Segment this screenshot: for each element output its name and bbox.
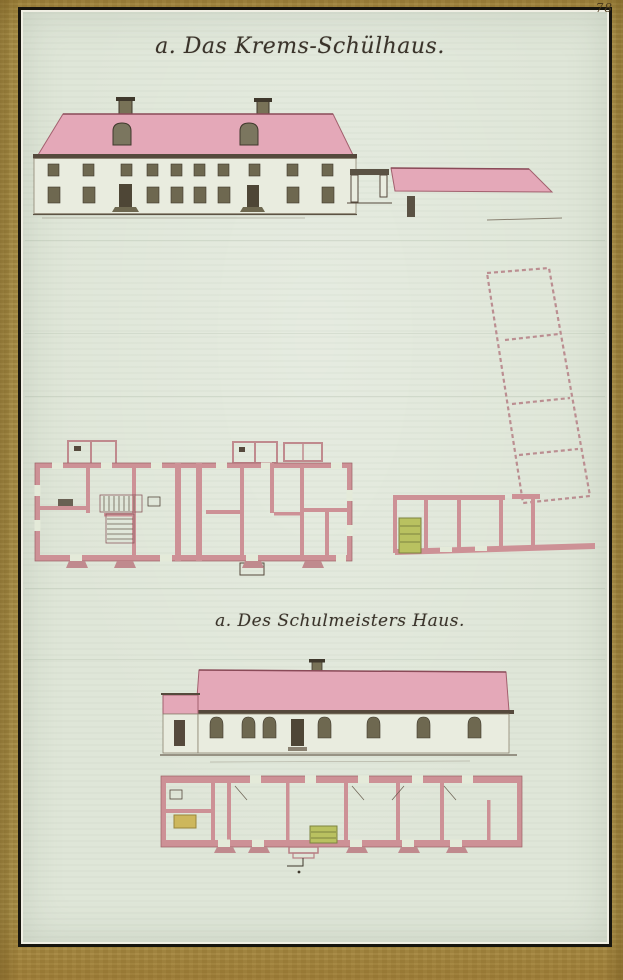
page-number: 78 [596, 1, 613, 15]
projected-extension [487, 268, 590, 503]
plan-door-steps [214, 847, 468, 853]
chimney-icon [116, 97, 135, 114]
title-schoolhouse: a. Das Krems-Schülhaus. [110, 34, 490, 59]
schoolmaster-elevation [160, 659, 517, 762]
schoolhouse-elevation [33, 97, 357, 218]
schoolhouse-floorplan [35, 441, 353, 575]
chimney-icon [309, 659, 325, 671]
entrance-steps [287, 847, 318, 873]
stove-yellow [174, 815, 196, 828]
stove-green [310, 826, 337, 843]
plan-projections [68, 441, 322, 465]
interior-walls [40, 463, 347, 561]
post [407, 196, 415, 217]
eaves-line [33, 154, 357, 159]
side-wing-elevation [347, 168, 562, 220]
outer-walls [161, 776, 522, 847]
plan-door-steps [66, 561, 324, 568]
drawing-canvas [0, 0, 623, 980]
gate-lintel [350, 169, 389, 175]
schoolmaster-floorplan [161, 776, 522, 874]
annex [161, 694, 200, 753]
side-wing-floorplan [393, 494, 595, 555]
dormer-window [240, 123, 258, 145]
manuscript-page: a. Das Krems-Schülhaus. a. Des Schulmeis… [0, 0, 623, 980]
hipped-roof [38, 114, 353, 155]
annex-door [174, 720, 185, 746]
chimney-icon [254, 98, 272, 114]
dormer-window [113, 123, 131, 145]
stove [399, 518, 421, 553]
title-schoolmaster-house: a. Des Schulmeisters Haus. [150, 611, 530, 631]
ruled-lines [25, 241, 605, 660]
eaves-line [192, 710, 514, 714]
entrance-door [291, 719, 304, 746]
door-steps [240, 207, 265, 212]
main-roof [196, 670, 509, 711]
door-steps [112, 207, 139, 212]
lean-to-roof [391, 168, 552, 192]
